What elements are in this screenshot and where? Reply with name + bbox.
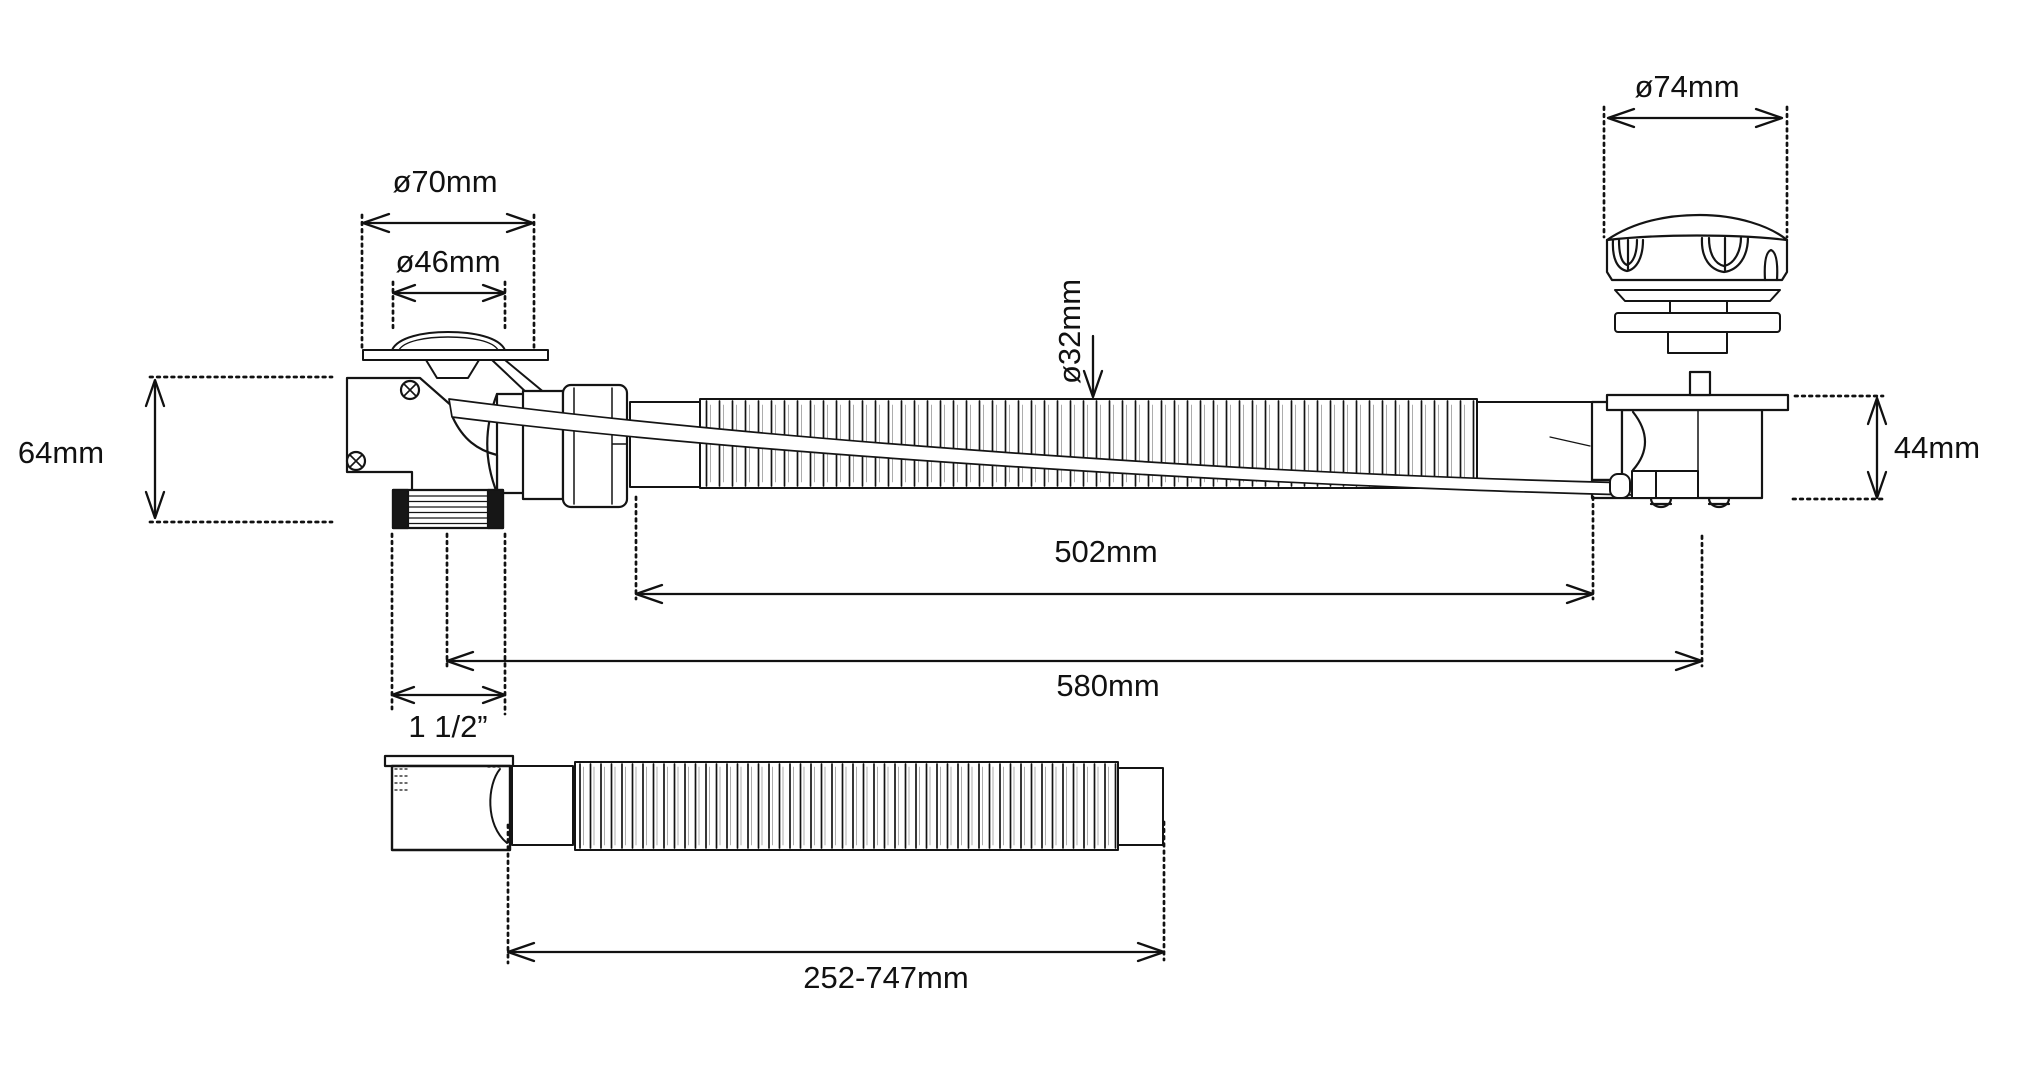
screw-top <box>401 381 419 399</box>
outlet-hose <box>385 756 1163 850</box>
cap-outline <box>1607 215 1787 280</box>
dimension-label: 252-747mm <box>803 960 968 995</box>
outlet-hose-neck <box>512 766 573 845</box>
overflow-plug-stack <box>1615 290 1780 353</box>
dimension-plug-diameter: ø46mm <box>393 244 505 332</box>
waste-flange-strut <box>492 360 546 394</box>
overflow-cap <box>1607 215 1787 280</box>
elbow-outlet-step <box>523 391 563 499</box>
outlet-hose-end <box>1118 768 1163 845</box>
threaded-tail <box>393 490 503 528</box>
dimension-hose-diameter: ø32mm <box>1052 279 1102 397</box>
overflow-hose-socket <box>1592 402 1622 480</box>
cable-anchor-tab <box>1610 474 1630 498</box>
dimension-label: 64mm <box>18 435 104 470</box>
plug-washer-disc <box>1615 313 1780 332</box>
overflow-stem <box>1690 372 1710 395</box>
outlet-cuff-flange <box>385 756 513 766</box>
hose-end-sleeve <box>1477 402 1592 485</box>
dimension-label: 1 1/2” <box>408 709 487 744</box>
overflow-flange <box>1607 395 1788 410</box>
plug-top-disc <box>1615 290 1780 301</box>
technical-drawing-page: ø70mm ø46mm ø74mm 64mm 44mm ø32mm 502mm <box>0 0 2043 1087</box>
waste-neck <box>426 360 479 378</box>
dimension-hose-length: 502mm <box>636 497 1593 603</box>
dimension-overflow-body-height: 44mm <box>1793 396 1980 499</box>
cable-anchor-box-small <box>1632 471 1656 498</box>
extension-lines <box>1793 396 1883 499</box>
bath-waste-technical-drawing: ø70mm ø46mm ø74mm 64mm 44mm ø32mm 502mm <box>0 0 2043 1087</box>
dimension-label: ø74mm <box>1634 69 1739 104</box>
outlet-cuff-body <box>392 766 510 850</box>
dimension-label: 502mm <box>1054 534 1157 569</box>
dimension-label: ø46mm <box>395 244 500 279</box>
dimension-label: 580mm <box>1056 668 1159 703</box>
compression-nut <box>563 385 627 507</box>
dimension-waste-body-height: 64mm <box>18 377 332 522</box>
overflow-foot-left <box>1651 498 1671 507</box>
plug-stem <box>1670 301 1727 313</box>
extension-lines <box>393 282 505 332</box>
cable-anchor-box <box>1656 471 1698 498</box>
plug-cylinder <box>1668 332 1727 353</box>
overflow-foot-right <box>1709 498 1729 507</box>
waste-flange-plate <box>363 350 548 360</box>
dimension-label: ø32mm <box>1052 279 1087 384</box>
dimension-thread-size: 1 1/2” <box>392 534 505 744</box>
outlet-hose-corrugated-section <box>575 762 1118 850</box>
hose-collar <box>630 402 700 487</box>
extension-lines <box>150 377 332 522</box>
dimension-cap-diameter: ø74mm <box>1604 69 1787 237</box>
screw-bottom <box>347 452 365 470</box>
extension-lines <box>362 215 534 348</box>
dimension-label: ø70mm <box>392 164 497 199</box>
dimension-label: 44mm <box>1894 430 1980 465</box>
cable-anchor <box>1610 471 1698 498</box>
extension-lines <box>392 534 505 714</box>
waste-plug-dome <box>392 332 505 350</box>
elbow-body-shell <box>347 378 497 493</box>
